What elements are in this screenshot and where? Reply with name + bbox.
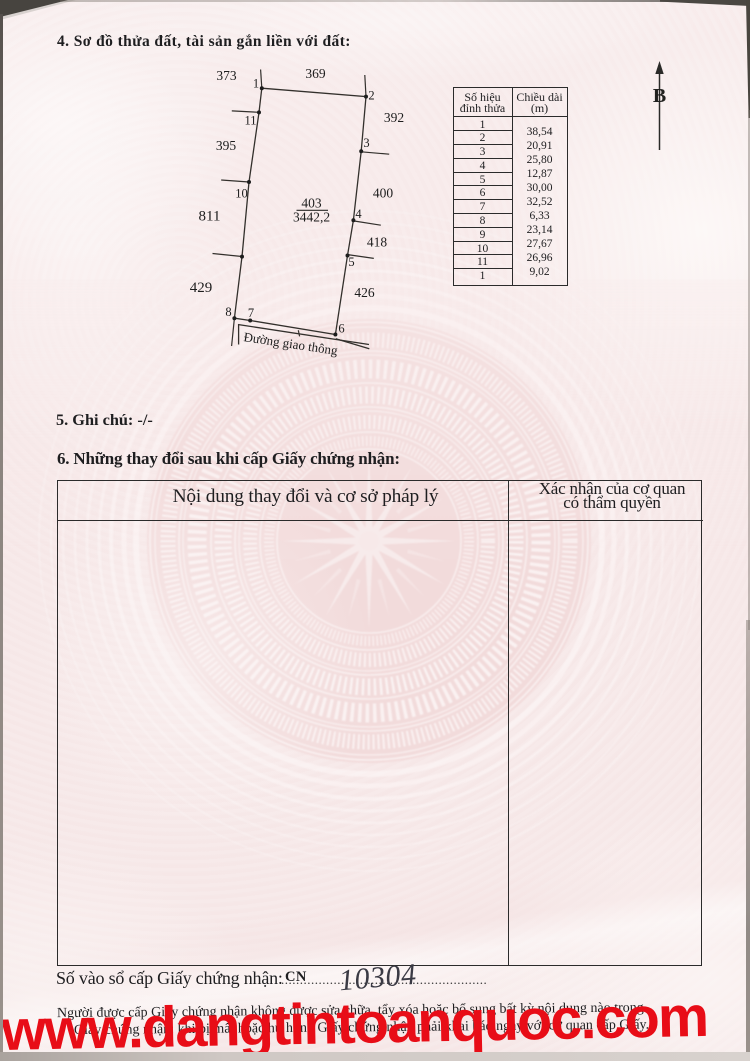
- svg-text:369: 369: [305, 66, 326, 81]
- svg-text:400: 400: [373, 186, 394, 201]
- svg-text:3: 3: [363, 136, 369, 150]
- svg-text:6: 6: [338, 322, 344, 336]
- svg-text:2: 2: [368, 89, 374, 103]
- svg-text:3442,2: 3442,2: [293, 210, 330, 225]
- svg-text:403: 403: [301, 196, 322, 211]
- svg-text:392: 392: [384, 110, 404, 125]
- svg-text:8: 8: [225, 305, 231, 319]
- svg-text:1: 1: [253, 77, 259, 91]
- svg-text:5: 5: [348, 255, 354, 269]
- svg-text:373: 373: [216, 68, 237, 83]
- svg-text:7: 7: [248, 306, 254, 320]
- svg-text:Đường giao thông: Đường giao thông: [243, 329, 339, 358]
- svg-text:10: 10: [235, 187, 248, 201]
- svg-text:429: 429: [190, 280, 213, 296]
- svg-text:811: 811: [199, 209, 221, 225]
- svg-text:11: 11: [244, 114, 256, 128]
- svg-text:395: 395: [216, 138, 237, 153]
- svg-text:418: 418: [367, 235, 388, 250]
- svg-text:4: 4: [355, 207, 362, 221]
- svg-text:426: 426: [354, 285, 375, 300]
